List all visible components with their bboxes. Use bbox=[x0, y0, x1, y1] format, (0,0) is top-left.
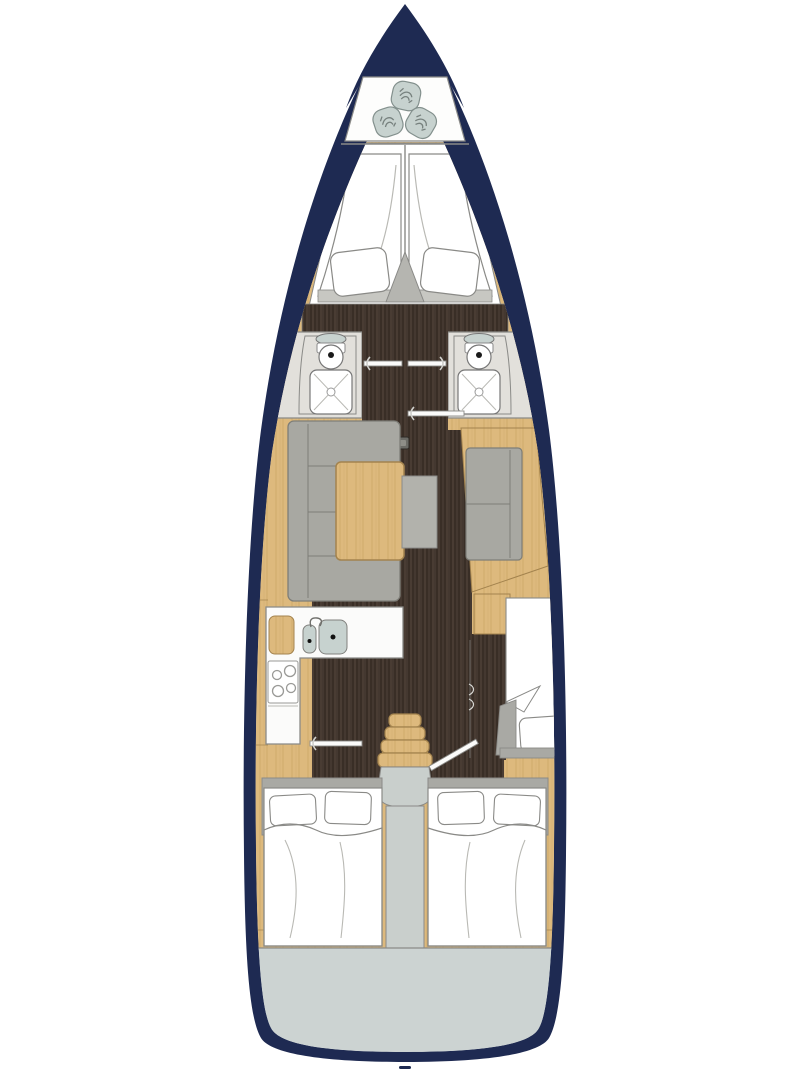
mid-cabin-shelf bbox=[474, 594, 510, 634]
transom bbox=[256, 948, 554, 1058]
door-icon bbox=[408, 411, 464, 416]
keel-mark-icon bbox=[399, 1066, 411, 1069]
stair-step bbox=[381, 740, 429, 753]
pillow bbox=[330, 247, 391, 297]
table-leaf bbox=[402, 476, 437, 548]
yacht-floorplan bbox=[0, 0, 810, 1080]
stair-step bbox=[385, 727, 425, 740]
door-icon bbox=[364, 361, 402, 366]
engine-compartment-column bbox=[386, 806, 424, 948]
floorplan-canvas bbox=[0, 0, 810, 1080]
pillow bbox=[269, 794, 317, 826]
aft-cabin-starboard bbox=[428, 778, 548, 946]
stair-step bbox=[389, 714, 421, 727]
pillow bbox=[437, 791, 484, 825]
door-icon bbox=[310, 741, 362, 746]
shower-drain bbox=[475, 388, 483, 396]
sink-drain bbox=[308, 639, 312, 643]
saloon-table bbox=[336, 462, 404, 560]
owner-cabin-dark-floor bbox=[302, 304, 508, 332]
stair-landing bbox=[378, 767, 432, 807]
sink-drain bbox=[331, 635, 336, 640]
pillow bbox=[420, 247, 481, 297]
cutting-board bbox=[269, 616, 294, 654]
pillow bbox=[493, 794, 541, 826]
stair-step bbox=[378, 753, 432, 767]
toilet-drain bbox=[328, 352, 334, 358]
shower-drain bbox=[327, 388, 335, 396]
toilet-drain bbox=[476, 352, 482, 358]
anchor-locker bbox=[341, 77, 469, 144]
pillow bbox=[324, 791, 371, 825]
door-icon bbox=[408, 361, 446, 366]
aft-cabin-port bbox=[262, 778, 382, 946]
